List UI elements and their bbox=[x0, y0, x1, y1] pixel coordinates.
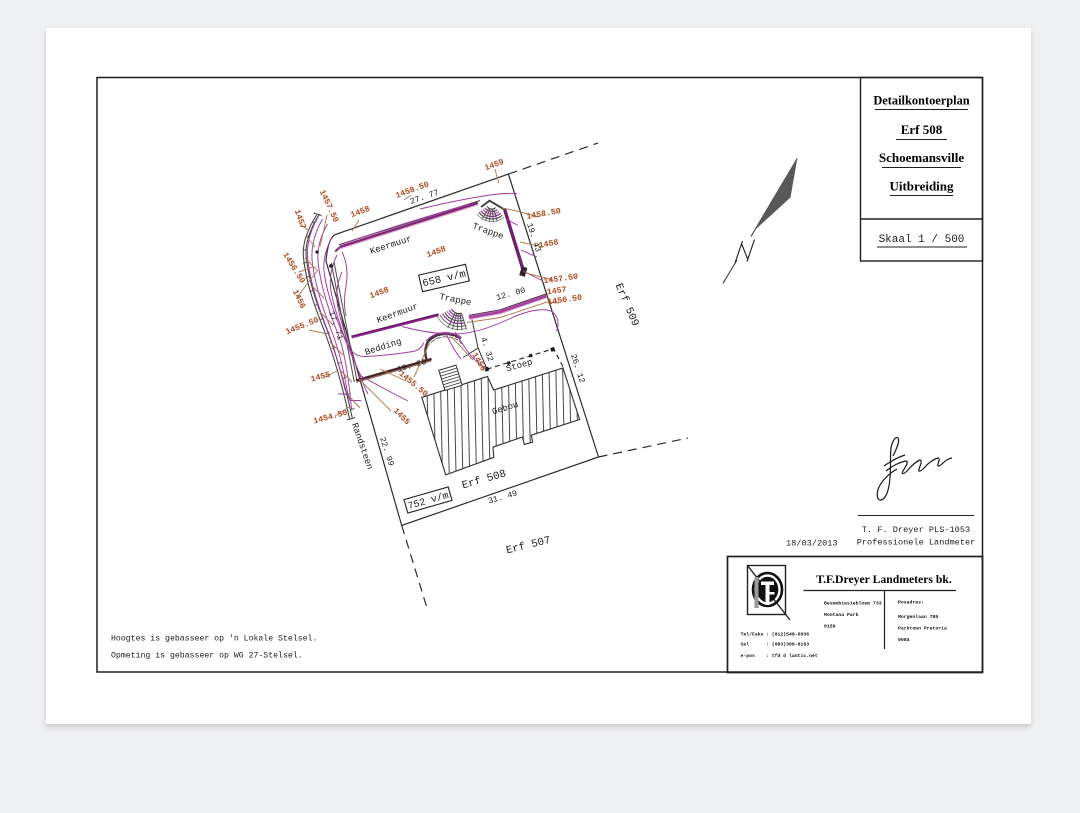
svg-text:752 v/m: 752 v/m bbox=[407, 490, 451, 513]
svg-text:1457.50: 1457.50 bbox=[543, 273, 579, 287]
svg-text:1458.50: 1458.50 bbox=[526, 207, 562, 222]
svg-text:Montana Park: Montana Park bbox=[824, 612, 859, 618]
svg-text:T. F. Dreyer PLS-1053: T. F. Dreyer PLS-1053 bbox=[862, 525, 970, 535]
svg-text:1454.50: 1454.50 bbox=[313, 409, 349, 427]
svg-text:Erf 509: Erf 509 bbox=[612, 282, 641, 328]
svg-text:Stoep: Stoep bbox=[505, 357, 534, 374]
svg-text:1456: 1456 bbox=[290, 288, 307, 310]
svg-text:Opmeting is gebasseer op WG 27: Opmeting is gebasseer op WG 27-Stelsel. bbox=[111, 651, 303, 661]
svg-text:Erf 507: Erf 507 bbox=[505, 535, 552, 558]
svg-text:Schoemansville: Schoemansville bbox=[879, 150, 964, 165]
svg-text:1455.50: 1455.50 bbox=[285, 316, 321, 337]
svg-text:1456.50: 1456.50 bbox=[280, 251, 306, 285]
svg-text:T.F.Dreyer Landmeters bk.: T.F.Dreyer Landmeters bk. bbox=[816, 573, 952, 586]
svg-text:Trappe: Trappe bbox=[471, 221, 505, 241]
svg-text:1458: 1458 bbox=[426, 245, 448, 260]
svg-text:1457: 1457 bbox=[292, 209, 307, 231]
svg-text:Sel: Sel bbox=[741, 642, 750, 648]
svg-text:1458: 1458 bbox=[369, 286, 391, 301]
svg-text:1455: 1455 bbox=[391, 407, 411, 427]
svg-text:0084: 0084 bbox=[898, 637, 910, 643]
svg-text:Posadres:: Posadres: bbox=[898, 600, 924, 606]
svg-text:: (083)308-8163: : (083)308-8163 bbox=[766, 642, 809, 648]
svg-text:1458: 1458 bbox=[350, 205, 372, 220]
svg-text:Bedding: Bedding bbox=[364, 337, 403, 358]
svg-text:31. 49: 31. 49 bbox=[487, 489, 518, 506]
svg-text:Randsteen: Randsteen bbox=[349, 422, 374, 471]
svg-text:1455.50: 1455.50 bbox=[397, 370, 429, 399]
svg-text:Trappe: Trappe bbox=[438, 292, 472, 308]
svg-text:: tfd @ lantic.net: : tfd @ lantic.net bbox=[766, 653, 818, 659]
svg-text:1458: 1458 bbox=[538, 238, 559, 250]
svg-text:Erf 508: Erf 508 bbox=[461, 468, 508, 492]
svg-text:: (012)548-6036: : (012)548-6036 bbox=[766, 632, 809, 638]
svg-text:1455: 1455 bbox=[310, 371, 332, 385]
svg-text:12. 00: 12. 00 bbox=[495, 286, 526, 302]
svg-text:22. 99: 22. 99 bbox=[377, 436, 395, 467]
svg-text:e-pos: e-pos bbox=[741, 654, 756, 659]
svg-text:Hoogtes is gebasseer op 'n Lok: Hoogtes is gebasseer op 'n Lokale Stelse… bbox=[111, 634, 317, 644]
svg-text:Detailkontoerplan: Detailkontoerplan bbox=[873, 94, 969, 108]
svg-text:1459: 1459 bbox=[484, 158, 506, 173]
svg-text:Besembiesiebloem 733: Besembiesiebloem 733 bbox=[824, 601, 882, 607]
svg-text:Morgenlaan 785: Morgenlaan 785 bbox=[898, 614, 938, 620]
svg-text:Uitbreiding: Uitbreiding bbox=[889, 179, 954, 194]
svg-text:Professionele Landmeter: Professionele Landmeter bbox=[857, 538, 976, 548]
svg-text:1457.50: 1457.50 bbox=[317, 189, 340, 224]
svg-text:18/03/2013: 18/03/2013 bbox=[786, 539, 838, 549]
svg-text:Tel/Faks: Tel/Faks bbox=[741, 632, 764, 638]
svg-text:Erf 508: Erf 508 bbox=[901, 122, 943, 137]
svg-text:0159: 0159 bbox=[824, 624, 836, 630]
svg-text:Parktown Pretoria: Parktown Pretoria bbox=[898, 626, 947, 632]
svg-text:Skaal 1 / 500: Skaal 1 / 500 bbox=[879, 234, 965, 246]
